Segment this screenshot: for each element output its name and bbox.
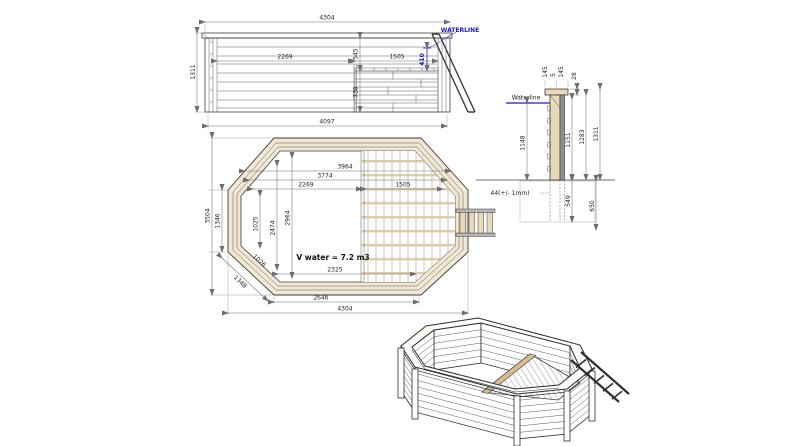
dim-elev-deck-width: 1505 [389,54,404,61]
dim-plan-inner-span-b: 2964 [285,210,292,225]
dim-plan-side-length: 1346 [215,213,222,228]
elevation-body [202,33,452,112]
dim-elev-base-width: 4097 [319,119,334,126]
dim-footing-depth: 650 [589,200,596,212]
dim-plan-inner-bottom: 2325 [327,267,342,274]
elevation-inner-deck [354,64,438,112]
dim-height-inner: 1151 [565,132,572,147]
section-coping [545,89,568,95]
dim-plan-overall-height: 3504 [205,208,212,223]
dim-plan-inner-side: 1025 [253,216,260,231]
dim-height-boards: 1283 [579,129,586,144]
dim-board-width-b: 145 [558,66,565,78]
dim-plan-inner-width-a: 2269 [298,182,313,189]
dim-elev-waterline-depth: 410 [419,53,426,66]
dim-plan-deck-width: 1505 [395,182,410,189]
dim-plan-bottom-edge: 2646 [313,295,328,302]
isometric-view [393,296,678,446]
elevation-ladder [432,34,475,112]
dim-coping-thickness: 28 [571,72,578,80]
dim-elev-overall-width: 4304 [319,15,334,22]
front-elevation-view: 4304 4097 1311 2269 1505 545 738 410 WAT… [190,8,500,136]
dim-post-depth: 549 [565,195,572,207]
dim-plan-inner-width-c: 3964 [337,164,352,171]
section-waterline-label: Waterline [512,95,541,102]
dim-plan-inner-span-a: 2474 [270,220,277,235]
elevation-planks [217,47,438,108]
plan-ladder [456,209,495,236]
dim-board-width-a: 145 [542,66,549,78]
dim-elev-inner-width-left: 2269 [277,54,292,61]
dim-elev-upper-height: 545 [353,48,360,60]
elevation-waterline-label: WATERLINE [441,27,480,34]
dim-elev-overall-height: 1311 [190,64,197,79]
dim-elev-lower-height: 738 [353,86,360,98]
plan-volume-note: V water = 7.2 m3 [296,253,369,262]
technical-drawing-canvas: 4304 4097 1311 2269 1505 545 738 410 WAT… [0,0,794,446]
dim-height-total: 1311 [593,126,600,141]
dim-water-depth: 1148 [520,135,527,150]
dim-plan-overall-width: 4304 [337,306,352,313]
dim-plan-corner-length: 1348 [232,274,248,290]
dim-board-gap: 5 [550,73,557,77]
dim-plan-inner-width-b: 3774 [317,173,332,180]
elevation-top-rim [202,33,452,38]
section-waterline: Waterline [506,95,550,104]
